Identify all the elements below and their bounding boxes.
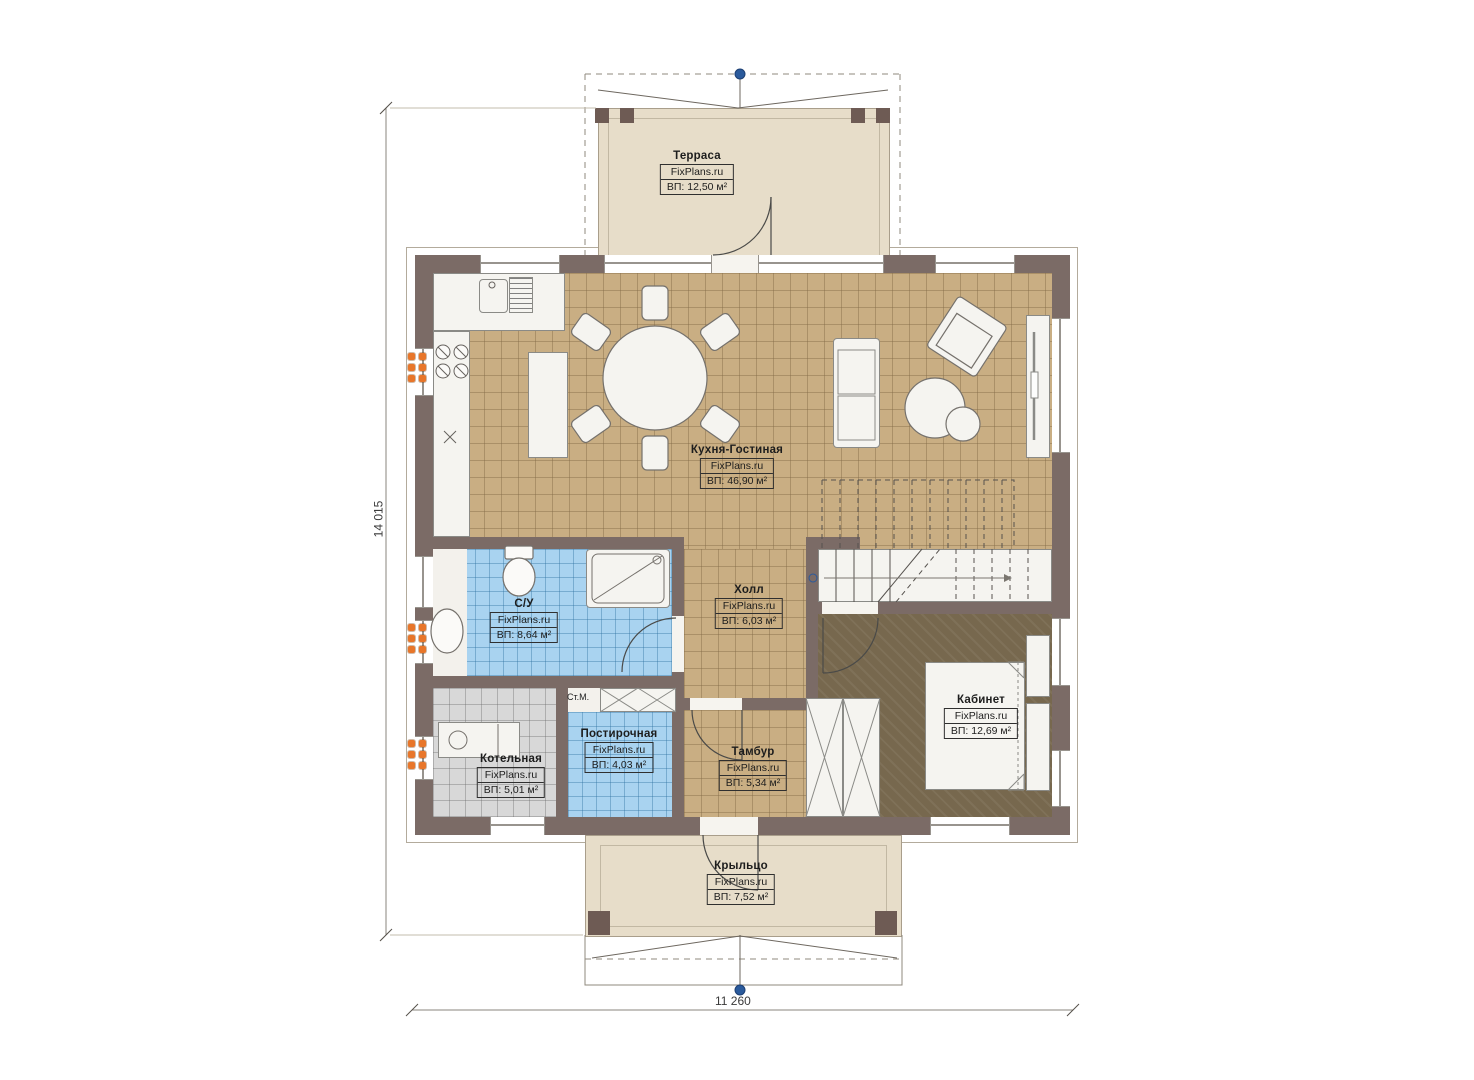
laundry-cabinet xyxy=(600,688,676,712)
room-area: ВП: 6,03 м² xyxy=(716,613,782,628)
door-opening-porch xyxy=(700,817,758,835)
door-opening-bathroom xyxy=(672,616,684,672)
shower-tray xyxy=(586,549,670,608)
wardrobe-1 xyxy=(806,698,843,817)
dimension-height-label: 14 015 xyxy=(371,501,385,538)
room-name: Терраса xyxy=(673,150,721,162)
kitchen-island xyxy=(528,352,568,458)
room-label-terrace: Терраса FixPlans.ru ВП: 12,50 м² xyxy=(660,150,734,195)
brand-link: FixPlans.ru xyxy=(478,768,544,782)
window-top-left xyxy=(480,255,560,273)
room-area: ВП: 8,64 м² xyxy=(491,627,557,642)
room-label-porch: Крыльцо FixPlans.ru ВП: 7,52 м² xyxy=(707,860,775,905)
tv-unit xyxy=(1026,315,1050,458)
washing-machine-label: Ст.М. xyxy=(567,692,589,702)
window-terrace-right xyxy=(758,255,884,273)
radiator-bathroom xyxy=(408,624,426,653)
room-name: Котельная xyxy=(480,753,542,765)
wall-boiler-laundry xyxy=(556,688,568,817)
room-label-laundry: Постирочная FixPlans.ru ВП: 4,03 м² xyxy=(581,728,658,773)
window-right-office-2 xyxy=(1052,750,1070,807)
wall-hall-right xyxy=(806,537,818,698)
room-label-vestibule: Тамбур FixPlans.ru ВП: 5,34 м² xyxy=(719,746,787,791)
office-side-table-2 xyxy=(1026,703,1050,791)
kitchen-counter-left xyxy=(433,331,470,537)
window-left-bathroom xyxy=(415,556,433,608)
brand-link: FixPlans.ru xyxy=(701,459,773,473)
door-opening-office xyxy=(822,602,878,614)
room-label-boiler: Котельная FixPlans.ru ВП: 5,01 м² xyxy=(477,753,545,798)
stairs-area xyxy=(818,549,1052,602)
sofa xyxy=(833,338,880,448)
dimension-width-label: 11 260 xyxy=(715,994,751,1008)
wall-bathroom-bottom xyxy=(433,676,684,688)
room-area: ВП: 4,03 м² xyxy=(586,757,652,772)
terrace-post xyxy=(876,108,890,123)
brand-link: FixPlans.ru xyxy=(708,875,774,889)
room-label-bathroom: С/У FixPlans.ru ВП: 8,64 м² xyxy=(490,598,558,643)
window-terrace-left xyxy=(604,255,712,273)
brand-link: FixPlans.ru xyxy=(661,165,733,179)
room-name: Кабинет xyxy=(957,694,1005,706)
room-area: ВП: 12,69 м² xyxy=(945,723,1017,738)
window-right-living xyxy=(1052,318,1070,453)
door-opening-vestibule xyxy=(690,698,742,710)
bathroom-vanity-strip xyxy=(433,549,467,676)
room-area: ВП: 5,01 м² xyxy=(478,782,544,797)
brand-link: FixPlans.ru xyxy=(945,709,1017,723)
terrace-post xyxy=(851,108,865,123)
brand-link: FixPlans.ru xyxy=(716,599,782,613)
window-top-right xyxy=(935,255,1015,273)
radiator-boiler xyxy=(408,740,426,769)
terrace-post xyxy=(595,108,609,123)
wall-bathroom-top xyxy=(433,537,684,549)
terrace-inner-line xyxy=(608,118,880,256)
porch-post xyxy=(588,911,610,935)
wall-stair-stub xyxy=(806,537,860,549)
porch-post xyxy=(875,911,897,935)
terrace-post xyxy=(620,108,634,123)
room-name: Постирочная xyxy=(581,728,658,740)
brand-link: FixPlans.ru xyxy=(491,613,557,627)
room-name: Крыльцо xyxy=(714,860,768,872)
room-area: ВП: 7,52 м² xyxy=(708,889,774,904)
room-label-hall: Холл FixPlans.ru ВП: 6,03 м² xyxy=(715,584,783,629)
room-area: ВП: 5,34 м² xyxy=(720,775,786,790)
room-area: ВП: 12,50 м² xyxy=(661,179,733,194)
room-name: Тамбур xyxy=(732,746,775,758)
kitchen-sink xyxy=(479,279,508,313)
door-opening-terrace xyxy=(712,255,758,273)
fridge xyxy=(509,277,533,313)
brand-link: FixPlans.ru xyxy=(720,761,786,775)
window-right-office-1 xyxy=(1052,618,1070,686)
window-bottom-boiler xyxy=(490,817,545,835)
brand-link: FixPlans.ru xyxy=(586,743,652,757)
radiator-kitchen xyxy=(408,353,426,382)
room-label-kitchen-living: Кухня-Гостиная FixPlans.ru ВП: 46,90 м² xyxy=(691,444,783,489)
room-name: Кухня-Гостиная xyxy=(691,444,783,456)
roof-lines-bottom xyxy=(585,935,902,990)
room-label-office: Кабинет FixPlans.ru ВП: 12,69 м² xyxy=(944,694,1018,739)
window-bottom-office xyxy=(930,817,1010,835)
floor-plan-canvas: Ст.М. xyxy=(0,0,1474,1080)
room-area: ВП: 46,90 м² xyxy=(701,473,773,488)
room-name: Холл xyxy=(734,584,764,596)
office-side-table-1 xyxy=(1026,635,1050,697)
wardrobe-2 xyxy=(843,698,880,817)
room-name: С/У xyxy=(514,598,533,610)
